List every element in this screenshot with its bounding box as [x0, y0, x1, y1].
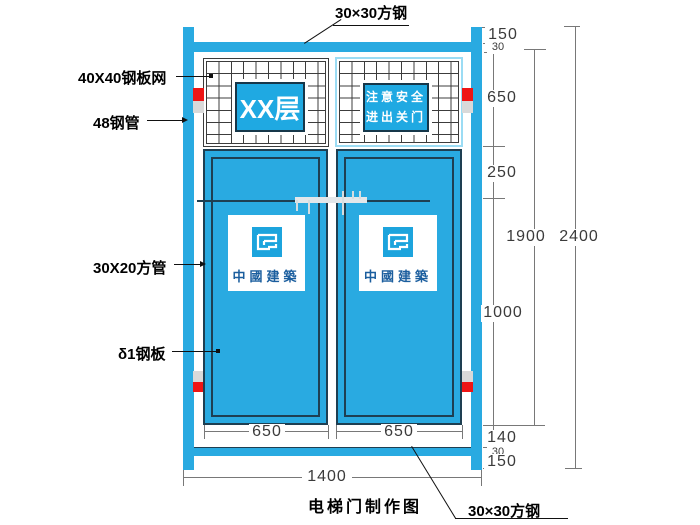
- dim-tick: [481, 470, 482, 486]
- label-mesh-material: 40X40钢板网: [78, 67, 166, 88]
- upper-right-marker: [462, 88, 473, 113]
- leader-arrow: [200, 261, 206, 267]
- leader-steel-pipe: [147, 120, 183, 121]
- dim-2400: 2400: [556, 229, 602, 246]
- bottom-rail: [194, 447, 471, 456]
- dim-tick: [565, 468, 582, 469]
- dim-tick: [204, 425, 205, 439]
- latch-pin: [296, 200, 298, 211]
- leader-arrow: [182, 117, 188, 123]
- dim-line-2400: [575, 26, 576, 468]
- dim-1900: 1900: [504, 229, 548, 246]
- cscec-logo: [252, 227, 282, 257]
- leader-mesh-material: [176, 76, 211, 77]
- dim-30-top: 30: [487, 42, 509, 54]
- dim-tick: [328, 425, 329, 439]
- latch-pin: [342, 191, 344, 215]
- leader-steel-plate: [172, 351, 217, 352]
- dim-tick: [483, 146, 505, 147]
- dim-650: 650: [484, 90, 520, 107]
- dim-140: 140: [484, 430, 520, 447]
- latch-pin: [308, 200, 310, 214]
- label-steel-pipe: 48钢管: [93, 112, 140, 133]
- cscec-logo: [383, 227, 413, 257]
- dim-tick: [524, 49, 546, 50]
- leader-top-square-steel: [304, 19, 341, 44]
- dim-tick: [483, 425, 545, 426]
- right-company-placard: 中國建築: [359, 215, 437, 291]
- leader-dot: [216, 349, 220, 353]
- lower-right-marker: [462, 371, 473, 392]
- leader-square-tube: [174, 264, 201, 265]
- upper-left-marker: [193, 88, 204, 113]
- label-square-tube: 30X20方管: [93, 257, 166, 278]
- dim-tick: [183, 470, 184, 486]
- elevator-door-drawing: XX层 注意安全 进出关门 中國建築 中國建築: [0, 0, 700, 525]
- safety-sign-line2: 进出关门: [366, 108, 426, 127]
- floor-sign: XX层: [235, 82, 305, 132]
- company-name: 中國建築: [364, 266, 432, 285]
- leader-dot: [209, 74, 213, 78]
- dim-tick: [336, 425, 337, 439]
- floor-sign-text: XX层: [240, 89, 301, 126]
- dim-tick: [483, 198, 505, 199]
- lower-left-marker: [193, 371, 203, 392]
- left-company-placard: 中國建築: [228, 215, 305, 291]
- dim-150-bottom: 150: [484, 454, 520, 471]
- label-bottom-square-steel: 30×30方钢: [468, 500, 540, 521]
- dim-1000: 1000: [481, 305, 525, 322]
- latch-handle-bar: [295, 197, 367, 203]
- drawing-title: 电梯门制作图: [308, 493, 422, 517]
- safety-sign-line1: 注意安全: [366, 88, 426, 107]
- dim-650-left: 650: [249, 424, 285, 441]
- dim-tick: [564, 26, 580, 27]
- dim-250: 250: [484, 165, 520, 182]
- latch-pin: [352, 191, 354, 199]
- label-top-square-steel: 30×30方钢: [333, 2, 409, 26]
- dim-tick: [462, 425, 463, 439]
- top-rail: [194, 42, 471, 52]
- dim-1400: 1400: [302, 469, 352, 486]
- latch-pin: [359, 191, 361, 199]
- safety-sign: 注意安全 进出关门: [363, 83, 429, 132]
- company-name: 中國建築: [232, 266, 300, 285]
- dim-650-right: 650: [381, 424, 417, 441]
- label-steel-plate: δ1钢板: [118, 343, 165, 364]
